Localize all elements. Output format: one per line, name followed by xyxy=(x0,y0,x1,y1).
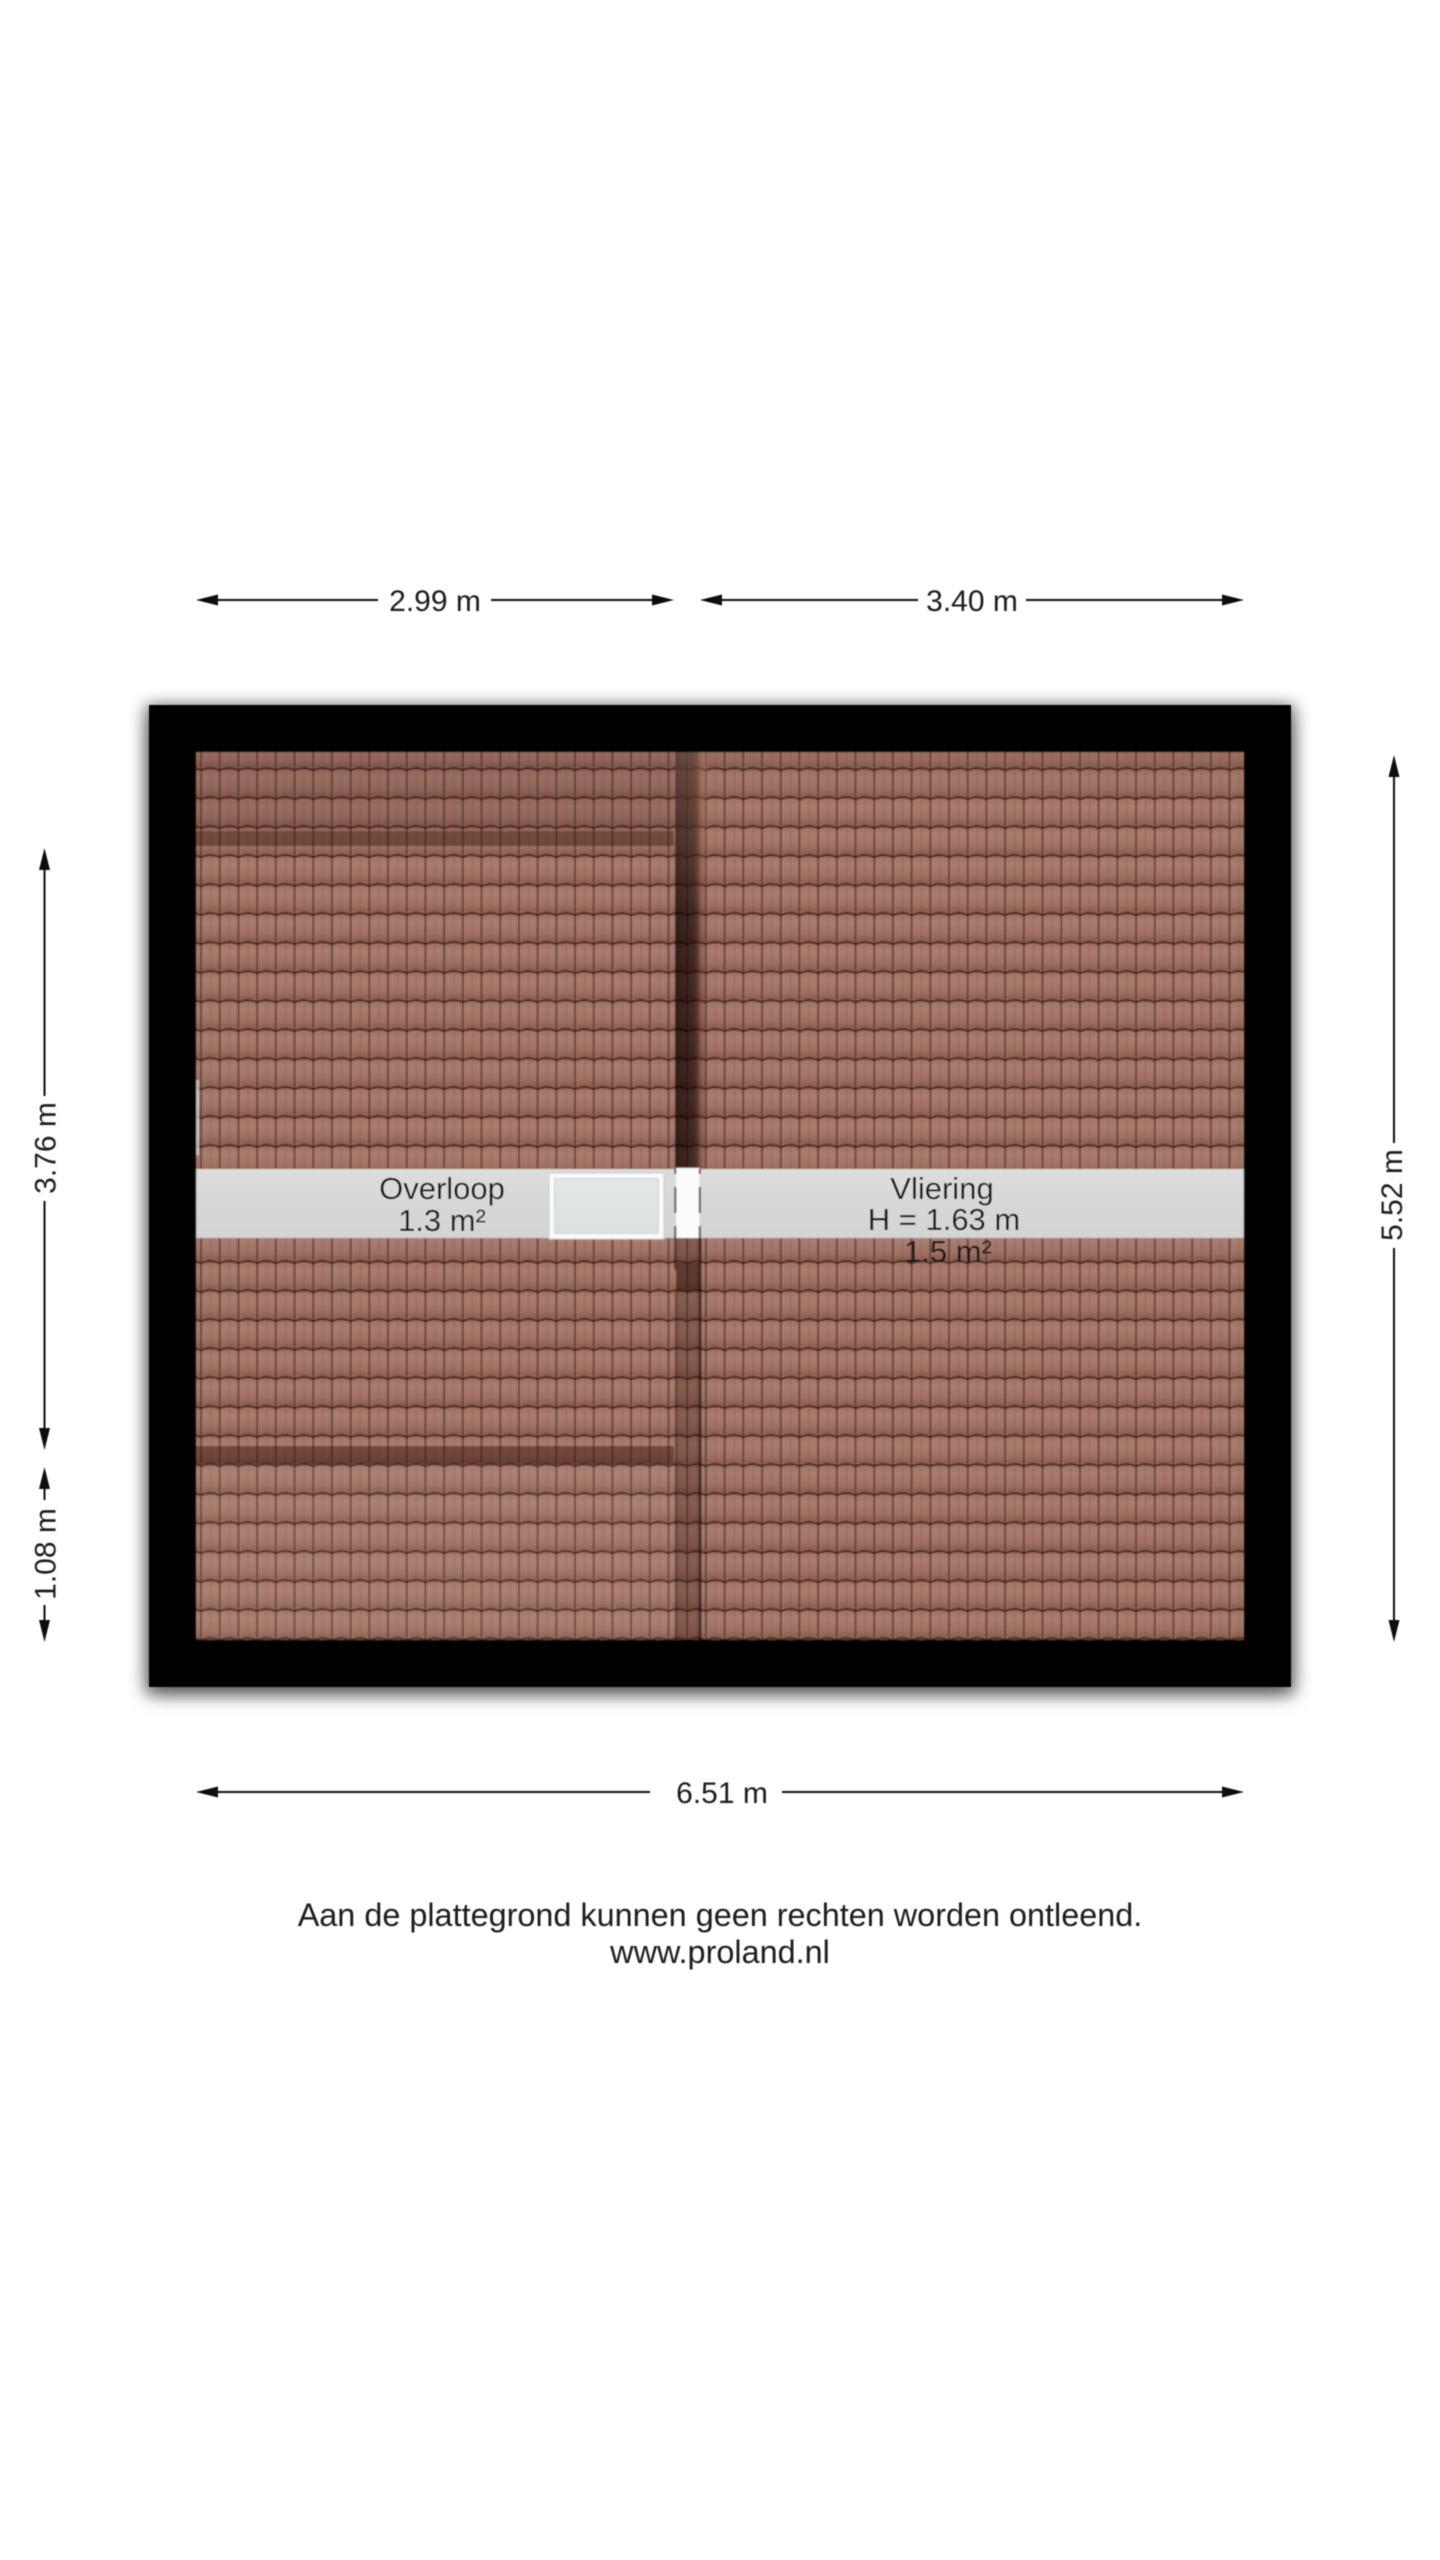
svg-text:3.40 m: 3.40 m xyxy=(926,585,1018,618)
svg-text:1.08 m: 1.08 m xyxy=(30,1508,63,1600)
svg-text:1.5 m²: 1.5 m² xyxy=(904,1234,992,1269)
svg-text:6.51 m: 6.51 m xyxy=(676,1777,768,1810)
svg-text:2.99 m: 2.99 m xyxy=(389,585,481,618)
svg-text:5.52 m: 5.52 m xyxy=(1376,1149,1409,1241)
svg-text:www.proland.nl: www.proland.nl xyxy=(609,1934,830,1970)
svg-text:Overloop: Overloop xyxy=(379,1171,505,1206)
svg-text:1.3 m²: 1.3 m² xyxy=(398,1203,486,1238)
svg-text:3.76 m: 3.76 m xyxy=(30,1102,63,1194)
svg-text:H = 1.63 m: H = 1.63 m xyxy=(868,1202,1021,1237)
svg-text:Vliering: Vliering xyxy=(890,1171,993,1206)
svg-text:Aan de plattegrond kunnen geen: Aan de plattegrond kunnen geen rechten w… xyxy=(298,1897,1143,1933)
